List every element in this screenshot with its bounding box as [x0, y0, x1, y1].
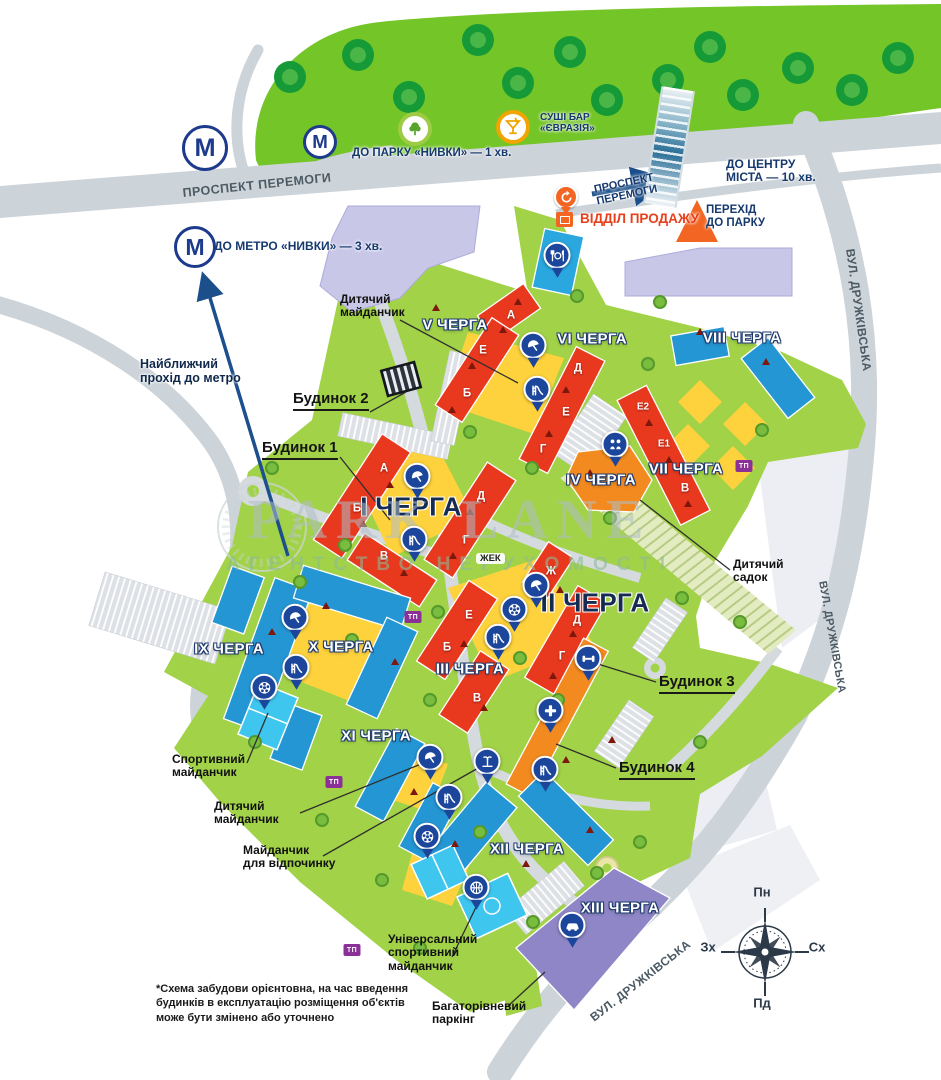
- car-icon: [559, 912, 586, 939]
- phase-label-іі-черга: ІІ ЧЕРГА: [541, 588, 650, 617]
- metro-icon[interactable]: М: [303, 125, 337, 159]
- road-label-avenue: ПРОСПЕКТ ПЕРЕМОГИ: [182, 170, 332, 200]
- unit-letter-в: В: [380, 551, 388, 564]
- slide-pin[interactable]: [401, 526, 428, 553]
- road-label-druzhkivska-bottom: ВУЛ. ДРУЖКІВСЬКА: [588, 938, 694, 1025]
- umbrella-pin[interactable]: [520, 332, 547, 359]
- dumbbell-pin[interactable]: [575, 645, 602, 672]
- unit-letter-в: В: [681, 483, 689, 496]
- tp-substation-icon: ТП: [736, 460, 753, 472]
- road-label-druzhkivska-top: ВУЛ. ДРУЖКІВСЬКА: [843, 248, 874, 372]
- slide-icon: [401, 526, 428, 553]
- fountain-icon: [474, 748, 501, 775]
- wheel-pin[interactable]: [414, 823, 441, 850]
- direction-to-metro: ДО МЕТРО «НИВКИ» — 3 хв.: [214, 240, 382, 253]
- direction-to-park: ДО ПАРКУ «НИВКИ» — 1 хв.: [352, 147, 511, 160]
- slide-pin[interactable]: [485, 624, 512, 651]
- direction-crossing-to-park: ПЕРЕХІД ДО ПАРКУ: [706, 204, 765, 230]
- slide-pin[interactable]: [436, 784, 463, 811]
- unit-letter-д: Д: [573, 615, 581, 628]
- umbrella-pin[interactable]: [417, 744, 444, 771]
- umbrella-icon: [417, 744, 444, 771]
- wheel-pin[interactable]: [251, 674, 278, 701]
- unit-letter-в: В: [473, 693, 481, 706]
- amenity-callout-багаторівневий: Багаторівневий паркінг: [432, 1000, 526, 1027]
- phase-label-xi-черга: XI ЧЕРГА: [341, 729, 411, 746]
- tp-substation-icon: ТП: [405, 611, 422, 623]
- umbrella-icon: [523, 572, 550, 599]
- disclaimer-footnote: *Схема забудови орієнтовна, на час введе…: [156, 982, 408, 1025]
- slide-icon: [283, 654, 310, 681]
- unit-letter-д: Д: [477, 491, 485, 504]
- slide-icon: [524, 376, 551, 403]
- slide-icon: [532, 756, 559, 783]
- amenity-callout-спортивний: Спортивний майданчик: [172, 753, 245, 780]
- unit-letter-е: Е: [479, 345, 487, 358]
- metro-icon[interactable]: М: [174, 226, 216, 268]
- slide-icon: [436, 784, 463, 811]
- children-icon: [602, 431, 629, 458]
- direction-to-center: ДО ЦЕНТРУ МІСТА — 10 хв.: [726, 158, 816, 185]
- unit-letter-г: Г: [463, 535, 470, 548]
- phase-label-xii-черга: XII ЧЕРГА: [490, 842, 564, 859]
- slide-pin[interactable]: [532, 756, 559, 783]
- umbrella-pin[interactable]: [282, 604, 309, 631]
- unit-letter-е: Е: [562, 407, 570, 420]
- cross-pin[interactable]: [537, 697, 564, 724]
- basketball-icon: [463, 874, 490, 901]
- phase-label-v-черга: V ЧЕРГА: [422, 318, 487, 335]
- slide-icon: [485, 624, 512, 651]
- road-label-druzhkivska-mid: ВУЛ. ДРУЖКІВСЬКА: [816, 580, 848, 694]
- wheel-pin[interactable]: [501, 596, 528, 623]
- compass-n: Пн: [753, 886, 770, 901]
- unit-letter-г: Г: [559, 651, 566, 664]
- house-callout-2: Будинок 1: [262, 440, 338, 460]
- unit-letter-г: Г: [540, 444, 547, 457]
- masterplan-map: PARK LANE АГЕНТСТВО НЕРУХОМОСТІ ЖЕК *Схе…: [0, 0, 941, 1080]
- umbrella-icon: [520, 332, 547, 359]
- compass-s: Пд: [753, 997, 771, 1012]
- restaurant-pin[interactable]: [544, 242, 571, 269]
- unit-letter-е: Е: [465, 610, 473, 623]
- fountain-pin[interactable]: [474, 748, 501, 775]
- umbrella-icon: [404, 463, 431, 490]
- amenity-callout-дитячий: Дитячий майданчик: [340, 293, 405, 320]
- cross-icon: [537, 697, 564, 724]
- phase-label-x-черга: X ЧЕРГА: [308, 640, 373, 657]
- wheel-icon: [501, 596, 528, 623]
- house-callout-1: Будинок 2: [293, 391, 369, 411]
- compass-e: Сх: [809, 941, 826, 956]
- slide-pin[interactable]: [524, 376, 551, 403]
- basketball-pin[interactable]: [463, 874, 490, 901]
- cocktail-icon: [496, 110, 530, 144]
- unit-letter-д: Д: [574, 363, 582, 376]
- phase-label-viii-черга: VIII ЧЕРГА: [703, 331, 782, 348]
- umbrella-icon: [282, 604, 309, 631]
- phase-label-iv-черга: IV ЧЕРГА: [566, 473, 636, 490]
- unit-letter-е1: Е1: [658, 438, 670, 449]
- tp-substation-icon: ТП: [344, 944, 361, 956]
- direction-avenue-direction: ПРОСПЕКТ ПЕРЕМОГИ: [593, 171, 659, 208]
- phase-label-vi-черга: VI ЧЕРГА: [557, 332, 627, 349]
- zhek-label: ЖЕК: [476, 553, 505, 564]
- compass-w: Зх: [700, 941, 715, 956]
- wheel-icon: [414, 823, 441, 850]
- phase-label-xiii-черга: XIII ЧЕРГА: [581, 901, 660, 918]
- children-pin[interactable]: [602, 431, 629, 458]
- umbrella-pin[interactable]: [404, 463, 431, 490]
- unit-letter-а: А: [380, 463, 388, 476]
- amenity-callout-дитячий: Дитячий майданчик: [214, 800, 279, 827]
- metro-icon[interactable]: М: [182, 125, 228, 171]
- watermark-subtitle: АГЕНТСТВО НЕРУХОМОСТІ: [160, 554, 740, 576]
- direction-sushi-bar: СУШІ БАР «ЄВРАЗІЯ»: [540, 112, 595, 134]
- direction-metro-path: Найближчий прохід до метро: [140, 357, 241, 385]
- phase-label-ix-черга: IX ЧЕРГА: [194, 642, 264, 659]
- park-tree-icon: [398, 112, 432, 146]
- amenity-callout-майданчик: Майданчик для відпочинку: [243, 844, 335, 871]
- unit-letter-б: Б: [463, 388, 471, 401]
- house-callout-4: Будинок 4: [619, 760, 695, 780]
- unit-letter-б: Б: [353, 503, 361, 516]
- dumbbell-icon: [575, 645, 602, 672]
- unit-letter-е2: Е2: [637, 401, 649, 412]
- house-callout-3: Будинок 3: [659, 674, 735, 694]
- phase-label-vii-черга: VII ЧЕРГА: [649, 462, 723, 479]
- umbrella-pin[interactable]: [523, 572, 550, 599]
- tp-substation-icon: ТП: [326, 776, 343, 788]
- curved-arrow-icon: [554, 185, 578, 209]
- wheel-icon: [251, 674, 278, 701]
- direction-sales-office: ВІДДІЛ ПРОДАЖУ: [580, 211, 699, 226]
- amenity-callout-дитячий: Дитячий садок: [733, 558, 784, 585]
- amenity-callout-універсальний: Універсальний спортивний майданчик: [388, 933, 477, 973]
- slide-pin[interactable]: [283, 654, 310, 681]
- car-pin[interactable]: [559, 912, 586, 939]
- restaurant-icon: [544, 242, 571, 269]
- unit-letter-б: Б: [443, 642, 451, 655]
- unit-letter-а: А: [507, 310, 515, 323]
- sales-office-pin[interactable]: [554, 185, 578, 209]
